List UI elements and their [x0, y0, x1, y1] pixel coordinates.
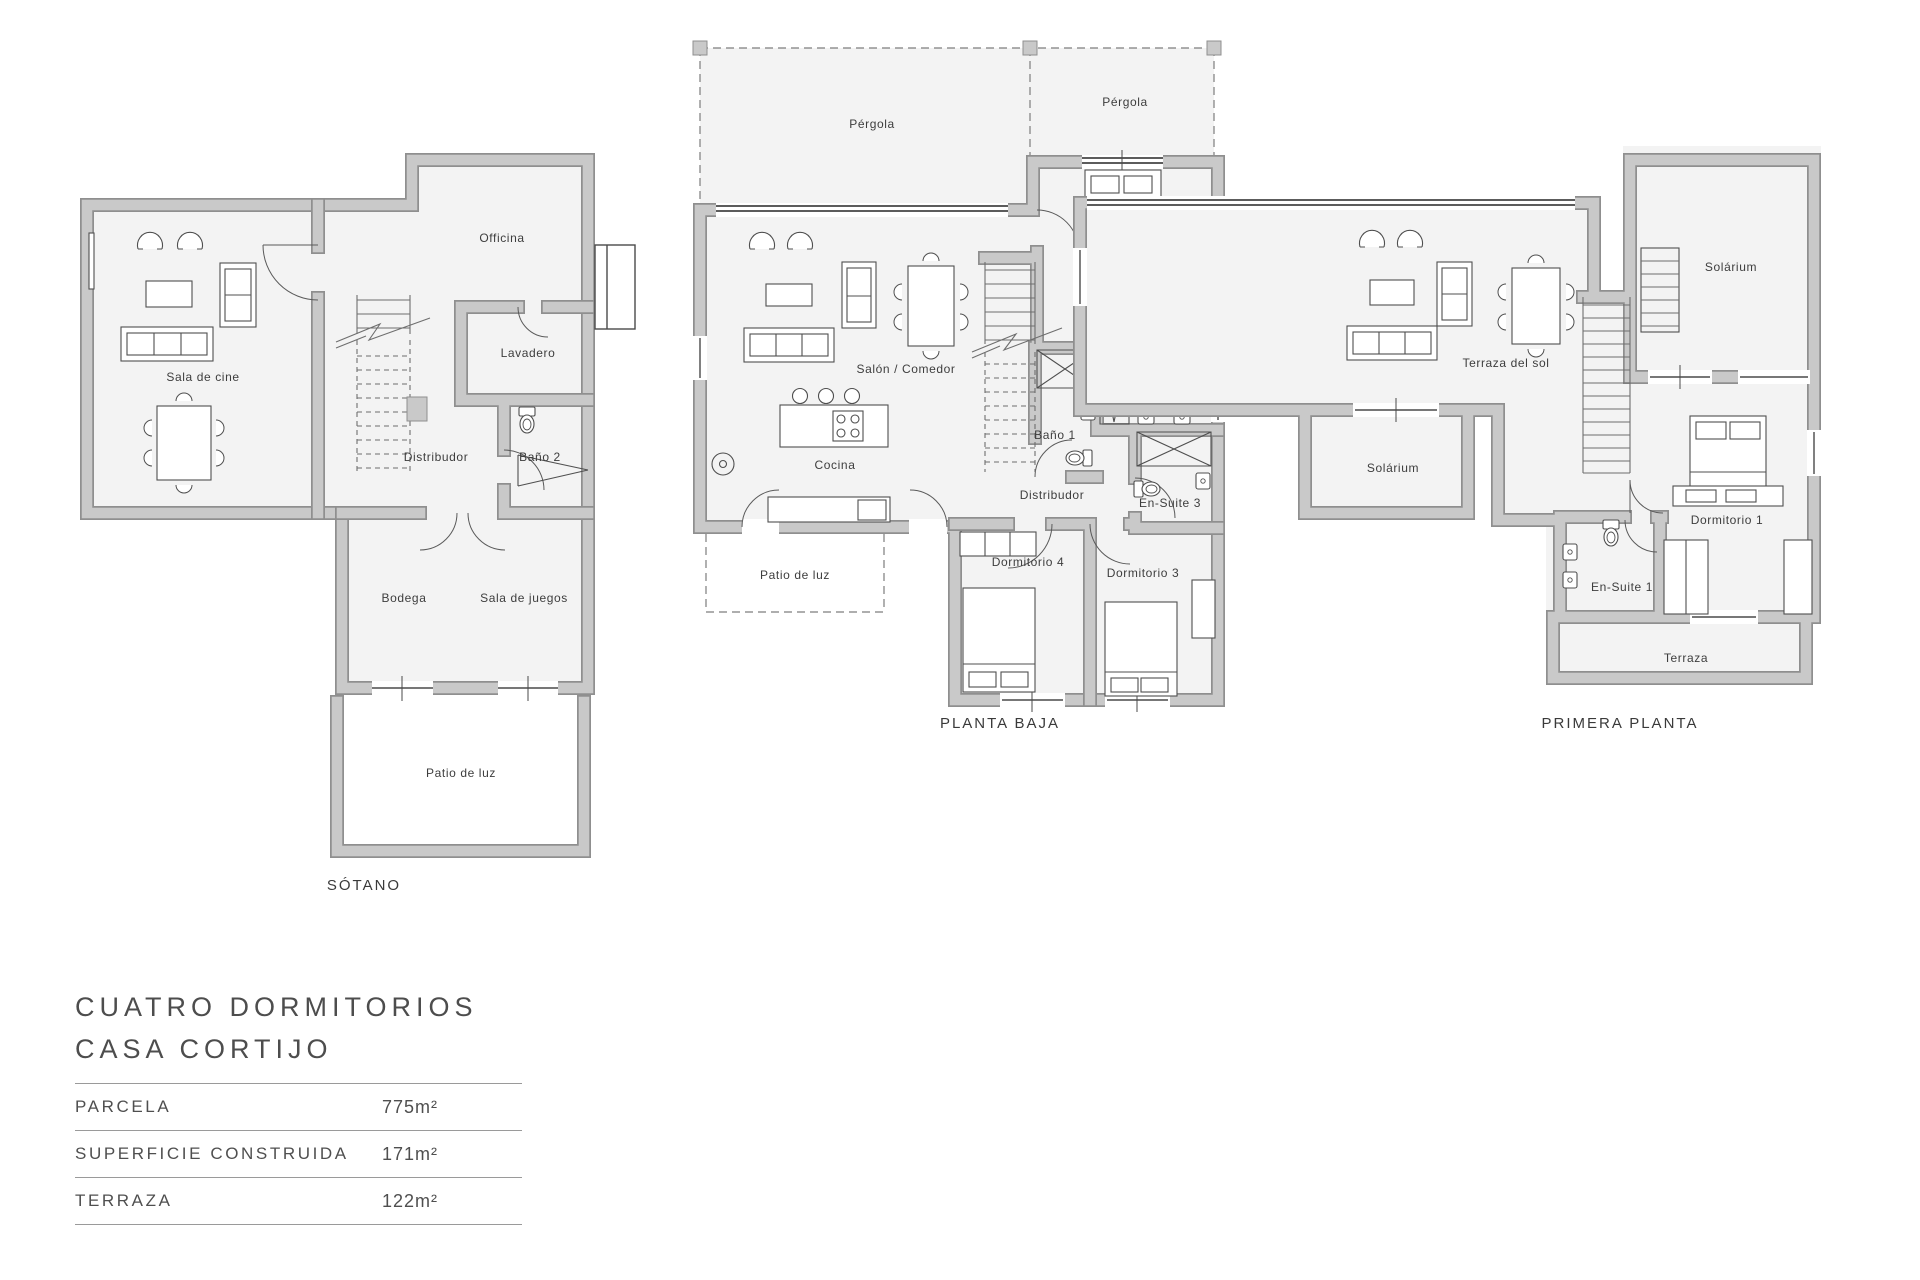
room-label-patio-baja: Patio de luz: [760, 568, 830, 582]
room-label-solarium-top: Solárium: [1705, 260, 1757, 274]
dining-table: [908, 266, 954, 346]
spec-label: TERRAZA: [75, 1191, 382, 1211]
toilet-icon: [1066, 450, 1092, 466]
room-label-dormitorio3: Dormitorio 3: [1107, 566, 1180, 580]
spec-row-superficie: SUPERFICIE CONSTRUIDA 171m²: [75, 1130, 522, 1177]
toilet-icon: [1603, 520, 1619, 546]
spec-label: SUPERFICIE CONSTRUIDA: [75, 1144, 382, 1164]
spec-value: 775m²: [382, 1097, 438, 1118]
room-label-patio-sotano: Patio de luz: [426, 766, 496, 780]
room-label-lavadero: Lavadero: [501, 346, 556, 360]
room-label-sala-de-juegos: Sala de juegos: [480, 591, 568, 605]
wardrobe: [960, 532, 1036, 556]
plan-title-primera-planta: PRIMERA PLANTA: [1542, 715, 1699, 732]
pergola-post-icon: [1207, 41, 1221, 55]
room-label-terraza-del-sol: Terraza del sol: [1462, 356, 1549, 370]
pergola-post-icon: [1023, 41, 1037, 55]
sink-icon: [1563, 544, 1577, 560]
room-label-cocina: Cocina: [815, 458, 856, 472]
room-label-distribudor-baja: Distribudor: [1020, 488, 1085, 502]
stool-icon: [819, 389, 834, 404]
bed: [963, 588, 1035, 692]
stool-icon: [845, 389, 860, 404]
room-label-pergola-right: Pérgola: [1102, 95, 1148, 109]
sink-icon: [1196, 473, 1210, 489]
room-label-distribudor: Distribudor: [404, 450, 469, 464]
room-label-solarium-left: Solárium: [1367, 461, 1419, 475]
room-label-dormitorio4: Dormitorio 4: [992, 555, 1065, 569]
room-label-ensuite1: En-Suite 1: [1591, 580, 1653, 594]
room-label-salon-comedor: Salón / Comedor: [856, 362, 955, 376]
wardrobe: [1784, 540, 1812, 614]
info-block: CUATRO DORMITORIOS CASA CORTIJO PARCELA …: [75, 986, 522, 1225]
room-label-pergola-left: Pérgola: [849, 117, 895, 131]
stool-icon: [793, 389, 808, 404]
toilet-icon: [1134, 481, 1160, 497]
plan-sotano: Sala de cine Officina Lavadero Distribud…: [80, 153, 635, 894]
spec-table: PARCELA 775m² SUPERFICIE CONSTRUIDA 171m…: [75, 1083, 522, 1225]
kitchen-counter: [768, 497, 890, 522]
room-label-bano2: Baño 2: [519, 450, 561, 464]
pergola-post-icon: [693, 41, 707, 55]
room-label-dormitorio1: Dormitorio 1: [1691, 513, 1764, 527]
wardrobe: [1192, 580, 1215, 638]
room-label-terraza: Terraza: [1664, 651, 1708, 665]
room-label-sala-de-cine: Sala de cine: [166, 370, 239, 384]
room-label-ensuite3: En-Suite 3: [1139, 496, 1201, 510]
spec-value: 122m²: [382, 1191, 438, 1212]
sheet-title-line2: CASA CORTIJO: [75, 1028, 522, 1070]
room-label-bodega: Bodega: [382, 591, 427, 605]
dining-table: [1512, 268, 1560, 344]
bed-bench: [1673, 486, 1783, 506]
spec-label: PARCELA: [75, 1097, 382, 1117]
floorplan-sheet: Sala de cine Officina Lavadero Distribud…: [0, 0, 1920, 1280]
plan-title-planta-baja: PLANTA BAJA: [940, 715, 1060, 732]
toilet-icon: [519, 407, 535, 433]
spec-row-terraza: TERRAZA 122m²: [75, 1177, 522, 1225]
room-label-bano1: Baño 1: [1034, 428, 1076, 442]
room-label-officina: Officina: [479, 231, 524, 245]
dining-table: [157, 406, 211, 480]
sink-icon: [1563, 572, 1577, 588]
plan-title-sotano: SÓTANO: [327, 877, 401, 894]
sheet-title-line1: CUATRO DORMITORIOS: [75, 986, 522, 1028]
spec-value: 171m²: [382, 1144, 438, 1165]
spec-row-parcela: PARCELA 775m²: [75, 1083, 522, 1130]
